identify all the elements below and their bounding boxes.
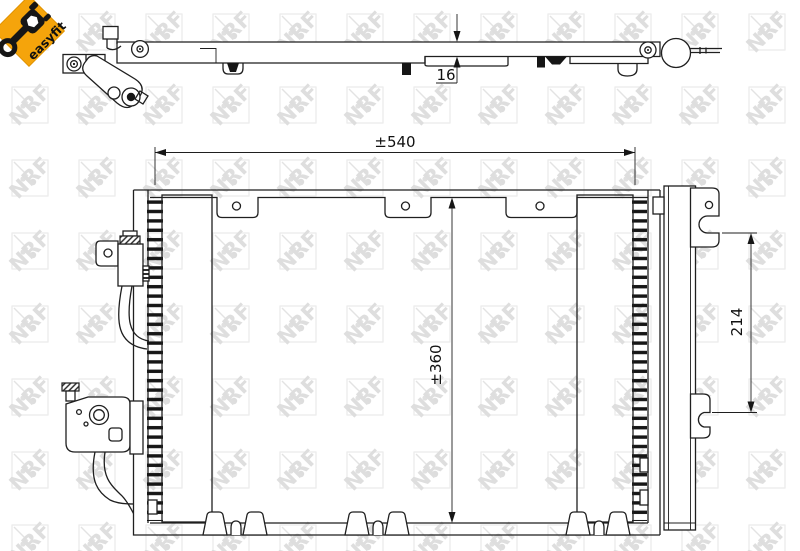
valve-cap <box>120 236 140 244</box>
fitting-bracket <box>96 241 118 266</box>
left-tube-ends <box>147 199 163 521</box>
drain-stub <box>148 500 157 514</box>
technical-drawing-page: NRF <box>0 0 800 551</box>
bolt-head <box>109 428 122 441</box>
tank-tab <box>640 490 648 505</box>
valve-stem <box>66 391 75 401</box>
valve-cap <box>62 383 79 391</box>
top-view-pin <box>537 57 545 68</box>
top-view-end-cap <box>662 39 691 68</box>
thickness-dim-label: 16 <box>436 66 455 84</box>
height-dim-label: ±360 <box>427 344 445 385</box>
tank-block <box>130 401 143 454</box>
top-view-tab <box>103 27 118 40</box>
side-view-tab <box>653 197 664 214</box>
valve-body <box>118 244 143 286</box>
top-view-pin <box>402 63 411 75</box>
right-tube-ends <box>632 199 647 521</box>
side-mount-dim-label: 214 <box>728 308 746 337</box>
tank-tab <box>640 458 648 472</box>
port-circle <box>90 406 109 425</box>
width-dim-label: ±540 <box>374 133 415 151</box>
condenser-technical-drawing: NRF <box>0 0 800 551</box>
